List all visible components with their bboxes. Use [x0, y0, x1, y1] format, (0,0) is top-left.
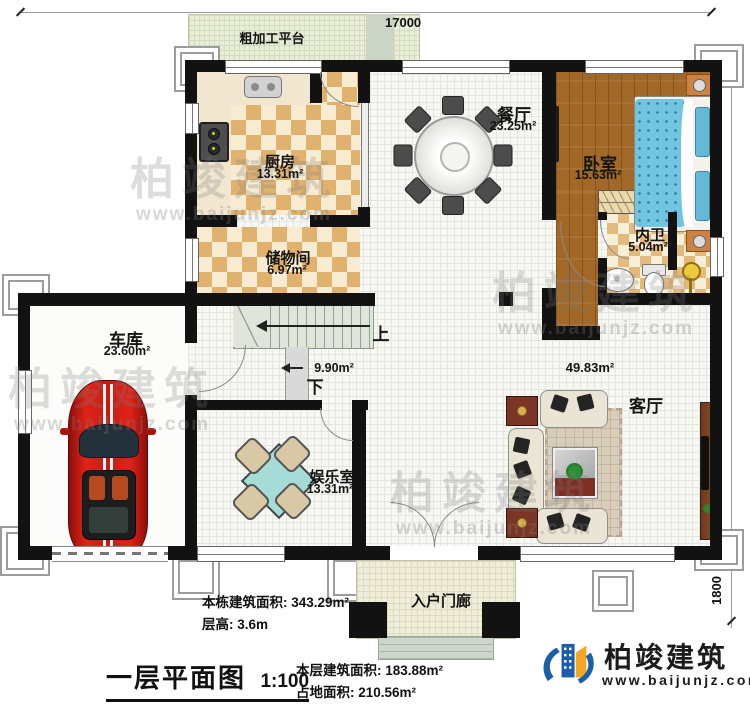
wall — [358, 72, 370, 103]
entertainment-area: 13.31m² — [307, 482, 354, 496]
wall — [542, 60, 556, 220]
wall — [197, 400, 322, 410]
wall — [542, 326, 600, 340]
stove — [199, 122, 229, 162]
pillow — [695, 107, 710, 157]
brand-url: www.baijunjz.com — [602, 672, 750, 688]
title-block: 一层平面图 1:100 — [106, 658, 309, 702]
column — [499, 292, 513, 306]
dining-chair — [394, 145, 413, 167]
window — [225, 60, 322, 74]
nightstand — [686, 230, 712, 252]
porch-column — [349, 602, 387, 638]
kitchen-sink — [244, 76, 282, 98]
dimension-right-label: 11800 — [709, 284, 724, 319]
living-label: 客厅 — [629, 392, 663, 417]
wall — [598, 293, 722, 305]
coffee-table — [553, 448, 597, 498]
dining-area: 23.25m² — [490, 119, 537, 133]
dimension-right-lower-label: 1800 — [709, 576, 724, 605]
dimension-top-label: 17000 — [385, 15, 421, 30]
garage-area: 23.60m² — [104, 344, 151, 358]
ensuite-area: 5.04m² — [628, 240, 668, 254]
porch-steps — [378, 636, 494, 660]
footprint-text: 占地面积: 210.56m² — [296, 681, 416, 701]
wall — [478, 546, 520, 560]
car-mirror — [60, 428, 70, 435]
wall — [168, 546, 197, 560]
sofa-top — [540, 390, 608, 428]
dining-chair — [442, 96, 464, 115]
window — [710, 237, 724, 277]
plant — [566, 463, 583, 480]
window — [197, 546, 285, 562]
stair-corridor — [285, 347, 309, 402]
window — [185, 238, 199, 282]
car-top-view — [68, 380, 148, 562]
wall — [18, 293, 30, 370]
stairs-down-label: 下 — [307, 373, 324, 398]
wall — [197, 215, 237, 227]
porch-column — [482, 602, 520, 638]
window — [585, 60, 684, 74]
entrance-door-gap — [390, 546, 478, 560]
sofa-cushion — [513, 437, 531, 455]
building-area-text: 本栋建筑面积: 343.29m² — [202, 591, 349, 611]
dimension-tick — [707, 7, 716, 16]
floor-plan: 17000 11800 1800 粗加工平台 — [0, 0, 750, 706]
floor-height-text: 层高: 3.6m — [202, 613, 268, 633]
living-area: 49.83m² — [566, 360, 614, 375]
wall — [185, 395, 197, 546]
side-table — [506, 396, 538, 426]
wall — [18, 546, 52, 560]
wall — [18, 432, 30, 560]
window — [402, 60, 510, 74]
tv — [701, 436, 709, 490]
brand-name: 柏竣建筑 — [604, 636, 728, 676]
wall — [310, 215, 360, 227]
sliding-door — [361, 103, 369, 207]
window — [520, 546, 675, 562]
floor-area-text: 本层建筑面积: 183.88m² — [296, 659, 443, 679]
stair-arrow — [288, 367, 303, 369]
car-mirror — [146, 428, 156, 435]
window-surround — [592, 570, 634, 612]
dining-chair — [442, 196, 464, 215]
stair-arrow — [266, 325, 370, 327]
wall — [598, 212, 607, 220]
wall — [283, 546, 390, 560]
garage-door — [52, 546, 168, 562]
wall — [185, 305, 197, 343]
window — [185, 103, 199, 134]
brand-logo-icon — [538, 632, 600, 698]
side-table — [506, 508, 538, 538]
car-windshield — [79, 424, 139, 458]
dimension-line-top — [20, 12, 712, 13]
storage-area: 6.97m² — [267, 263, 307, 277]
wall — [673, 546, 722, 560]
floor-drain-stem — [689, 278, 692, 293]
kitchen-floor — [231, 105, 360, 215]
wall — [710, 60, 722, 237]
wall — [668, 212, 677, 270]
brand-logo: 柏竣建筑 www.baijunjz.com — [538, 630, 742, 702]
kitchen-area: 13.31m² — [257, 167, 304, 181]
porch-label: 入户门廊 — [411, 590, 471, 611]
car-engine-bay — [82, 470, 136, 540]
wall — [320, 60, 402, 72]
stair-arrow-head-icon — [256, 320, 267, 332]
window — [18, 370, 32, 434]
bedroom-area: 15.63m² — [575, 168, 622, 182]
platform-label: 粗加工平台 — [239, 28, 304, 47]
nightstand — [686, 74, 712, 96]
wall — [185, 132, 197, 238]
dining-chair — [494, 145, 513, 167]
wall — [185, 60, 197, 103]
page-title: 一层平面图 — [106, 663, 246, 693]
pillow — [695, 171, 710, 221]
stair-arrow-head-icon — [281, 363, 290, 373]
stairs-up-label: 上 — [373, 320, 390, 345]
